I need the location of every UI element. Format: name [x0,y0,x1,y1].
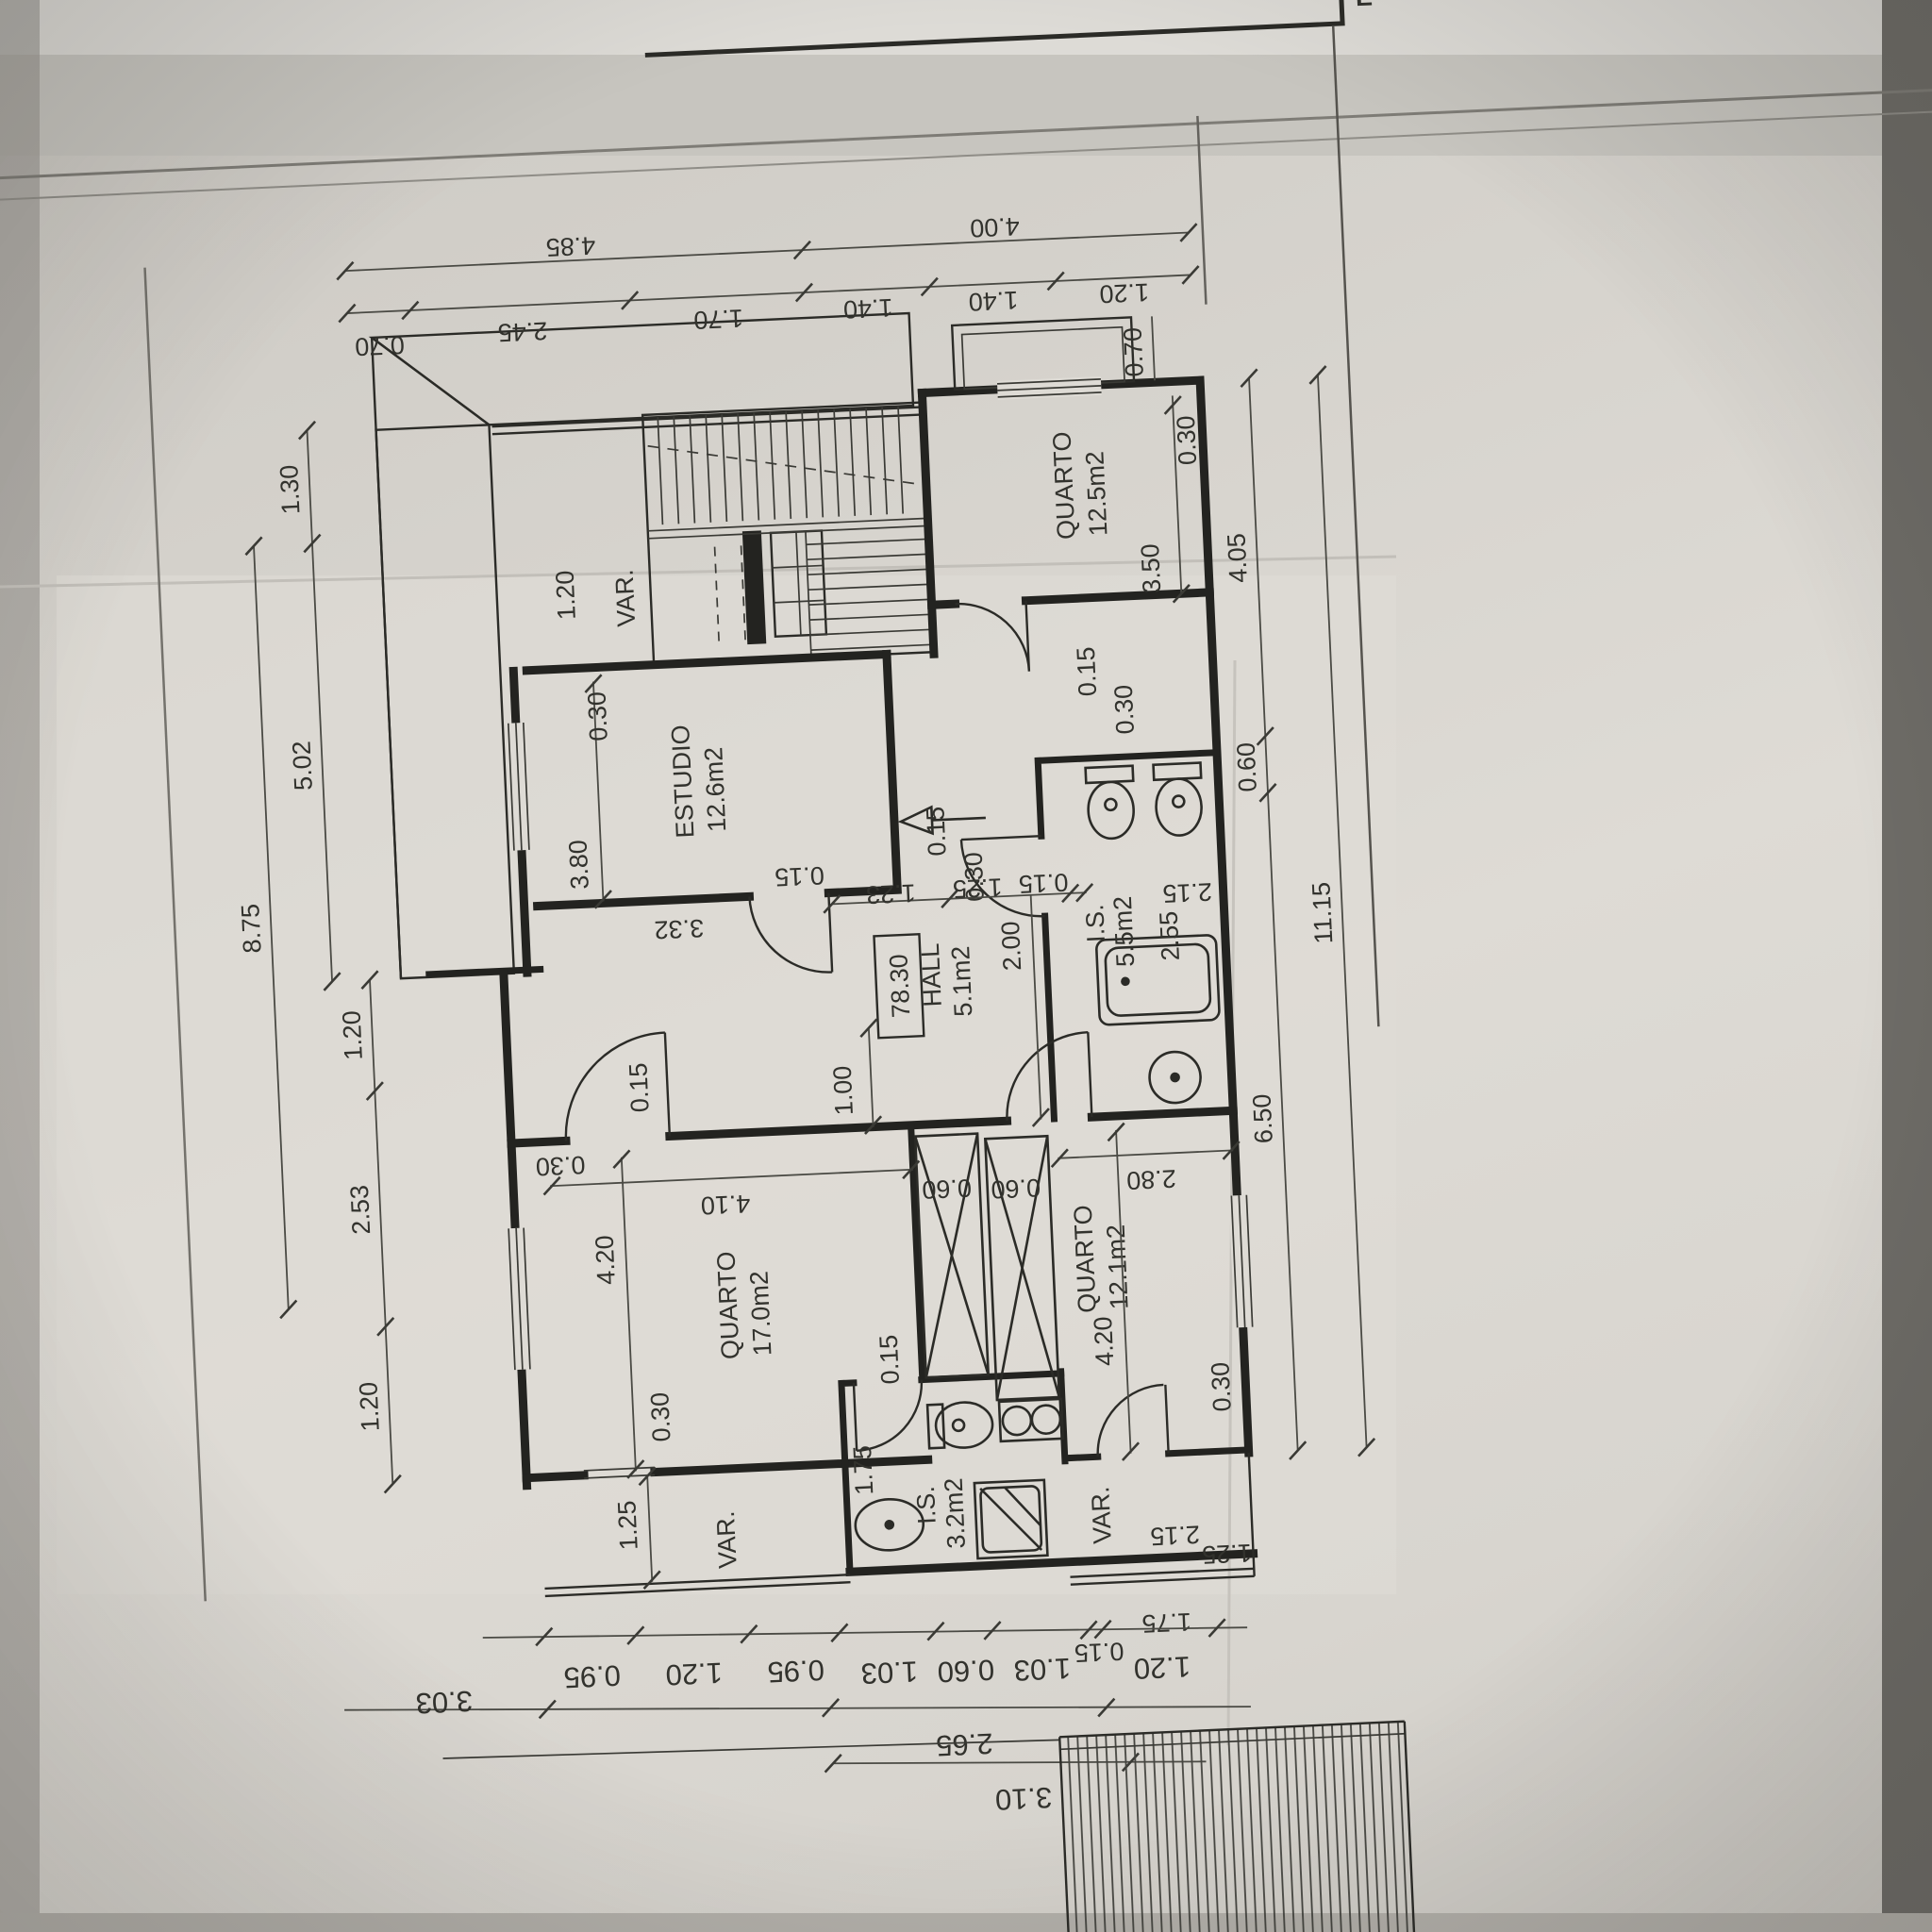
floorplan-sheet: E VAR. 1.20 [0,0,1932,1932]
photo-vignette [0,0,1932,1932]
floorplan-photo: E VAR. 1.20 [0,0,1932,1932]
